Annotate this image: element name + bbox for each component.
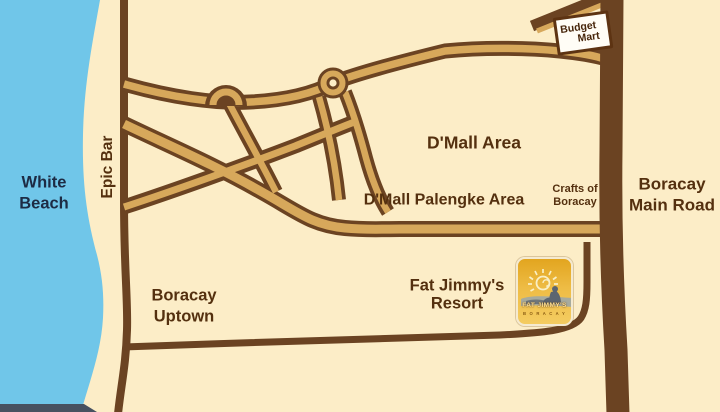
label-line: Crafts of [552,183,597,196]
budget-mart-sign: Budget Mart [553,10,614,55]
fat-jimmys-logo-badge: FAT JIMMY'S B O R A C A Y [516,257,573,326]
label-epic-bar: Epic Bar [99,136,117,199]
bottom-edge-strip [0,404,97,412]
label-line: Main Road [629,195,715,216]
map-canvas [0,0,720,412]
label-fat-jimmys-resort: Fat Jimmy's Resort [410,277,505,314]
label-white-beach: White Beach [19,172,69,213]
label-crafts-of-boracay: Crafts of Boracay [552,183,597,209]
logo-tagline: B O R A C A Y [518,311,571,316]
label-line: Fat Jimmy's [410,277,505,295]
boracay-location-map: { "colors": { "water": "#70c6e9", "sand"… [0,0,720,412]
label-boracay-main-road: Boracay Main Road [629,174,715,215]
label-line: Boracay [151,285,216,306]
label-line: White [19,172,69,193]
logo-name: FAT JIMMY'S [518,302,571,309]
label-line: Boracay [552,196,597,209]
label-line: Boracay [629,174,715,195]
boracay-main-road [611,0,618,412]
roundabout [318,68,349,99]
label-dmall-area: D'Mall Area [427,133,521,154]
label-line: Uptown [151,306,216,327]
label-boracay-uptown: Boracay Uptown [151,285,216,326]
label-line: Beach [19,193,69,214]
label-dmall-palengke-area: D'Mall Palengke Area [364,192,525,211]
label-line: Resort [410,295,505,313]
roundabout-island [328,78,337,87]
